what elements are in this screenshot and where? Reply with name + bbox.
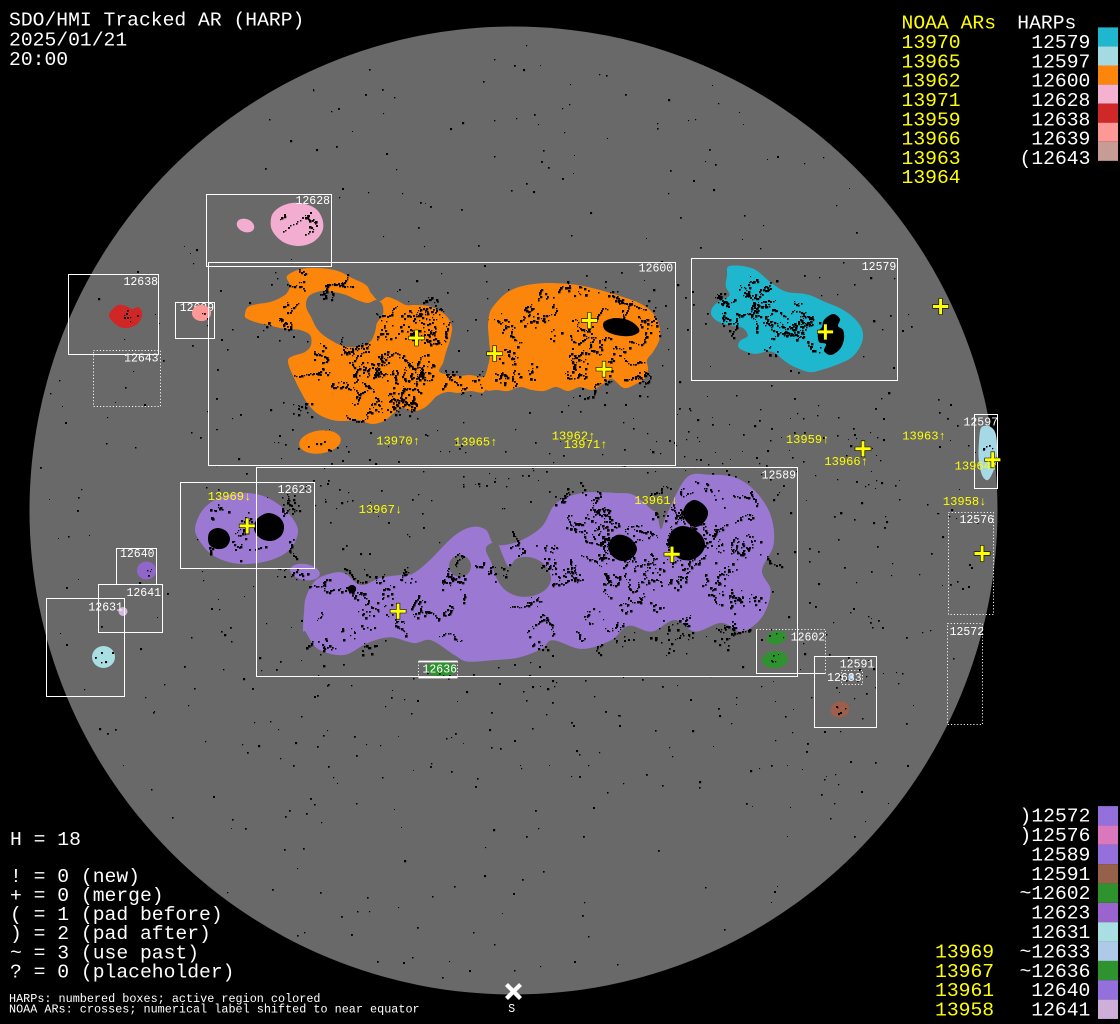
svg-text:20:00: 20:00 [9,49,68,71]
svg-text:12641: 12641 [126,587,161,600]
svg-text:H = 18: H = 18 [10,829,81,851]
svg-text:12628: 12628 [295,195,330,208]
svg-text:12572: 12572 [950,626,985,639]
svg-text:13961↓: 13961↓ [634,494,678,508]
svg-text:12576: 12576 [960,514,995,527]
svg-text:13963↑: 13963↑ [902,430,946,444]
svg-text:13971↑: 13971↑ [564,438,608,452]
svg-text:13958↓: 13958↓ [943,495,987,509]
svg-text:(12643: (12643 [1020,148,1091,170]
svg-text:12602: 12602 [791,631,826,644]
svg-text:13969↓: 13969↓ [208,490,252,504]
svg-text:12638: 12638 [123,276,158,289]
svg-text:12579: 12579 [862,261,897,274]
svg-text:13966↑: 13966↑ [824,455,868,469]
svg-text:12643: 12643 [124,353,159,366]
svg-text:12623: 12623 [278,484,313,497]
svg-text:? = 0 (placeholder): ? = 0 (placeholder) [10,961,234,983]
svg-text:NOAA ARs: crosses; numerical l: NOAA ARs: crosses; numerical label shift… [9,1002,420,1016]
svg-text:12631: 12631 [88,601,123,614]
svg-text:13964↑: 13964↑ [955,460,999,474]
svg-text:13964: 13964 [902,167,961,189]
svg-text:13967↓: 13967↓ [359,503,403,517]
svg-text:2025/01/21: 2025/01/21 [9,29,127,51]
svg-text:13958: 13958 [935,1000,994,1022]
svg-text:12589: 12589 [762,469,797,482]
svg-text:13970↑: 13970↑ [376,435,420,449]
svg-text:SDO/HMI Tracked AR (HARP): SDO/HMI Tracked AR (HARP) [9,10,304,32]
svg-text:12641: 12641 [1031,1000,1090,1022]
svg-text:12640: 12640 [120,548,155,561]
svg-text:13965↑: 13965↑ [454,436,498,450]
svg-text:S: S [508,1003,515,1016]
svg-text:12633: 12633 [827,672,862,685]
svg-text:12597: 12597 [964,417,999,430]
svg-text:12591: 12591 [840,659,875,672]
svg-text:12636: 12636 [423,664,458,677]
svg-text:12600: 12600 [639,263,674,276]
svg-text:13959↑: 13959↑ [786,433,830,447]
